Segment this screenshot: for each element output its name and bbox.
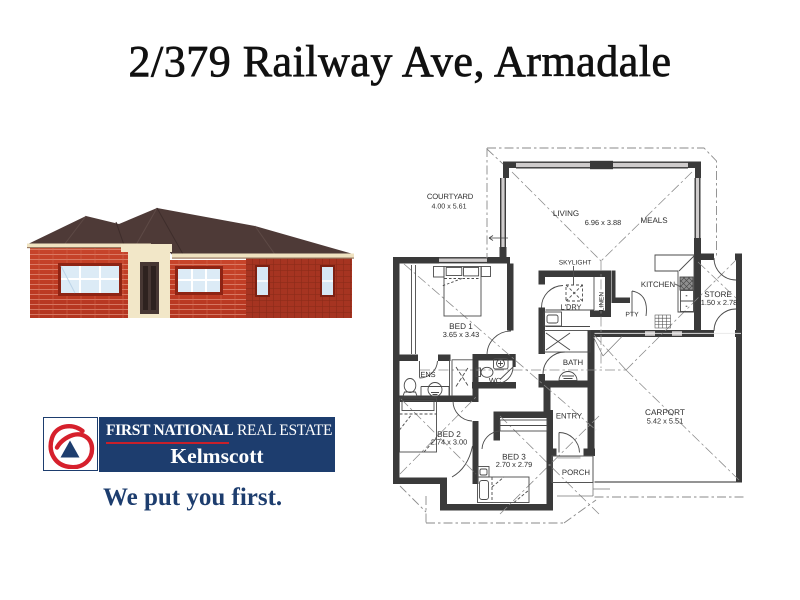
svg-text:6.96 x 3.88: 6.96 x 3.88 bbox=[585, 218, 622, 227]
svg-text:ENTRY: ENTRY bbox=[556, 412, 583, 421]
svg-text:COURTYARD: COURTYARD bbox=[427, 192, 474, 201]
svg-text:PTY: PTY bbox=[625, 312, 639, 319]
svg-text:1.50 x 2.78: 1.50 x 2.78 bbox=[701, 298, 738, 307]
svg-text:KITCHEN: KITCHEN bbox=[641, 280, 675, 289]
svg-text:L'DRY: L'DRY bbox=[561, 303, 582, 312]
svg-text:PORCH: PORCH bbox=[562, 468, 590, 477]
svg-text:4.00 x 5.61: 4.00 x 5.61 bbox=[431, 203, 466, 211]
svg-text:BATH: BATH bbox=[563, 358, 583, 367]
svg-text:2.74 x 3.00: 2.74 x 3.00 bbox=[431, 438, 468, 447]
svg-text:3.65 x 3.43: 3.65 x 3.43 bbox=[443, 330, 480, 339]
svg-text:2.70 x 2.79: 2.70 x 2.79 bbox=[496, 460, 533, 469]
svg-text:SKYLIGHT: SKYLIGHT bbox=[559, 260, 592, 267]
svg-text:LINEN: LINEN bbox=[599, 292, 606, 311]
svg-text:WC: WC bbox=[489, 376, 502, 385]
svg-text:LIVING: LIVING bbox=[553, 209, 579, 218]
svg-text:5.42 x 5.51: 5.42 x 5.51 bbox=[647, 417, 684, 426]
svg-text:ENS: ENS bbox=[420, 370, 435, 379]
svg-text:MEALS: MEALS bbox=[640, 216, 667, 225]
